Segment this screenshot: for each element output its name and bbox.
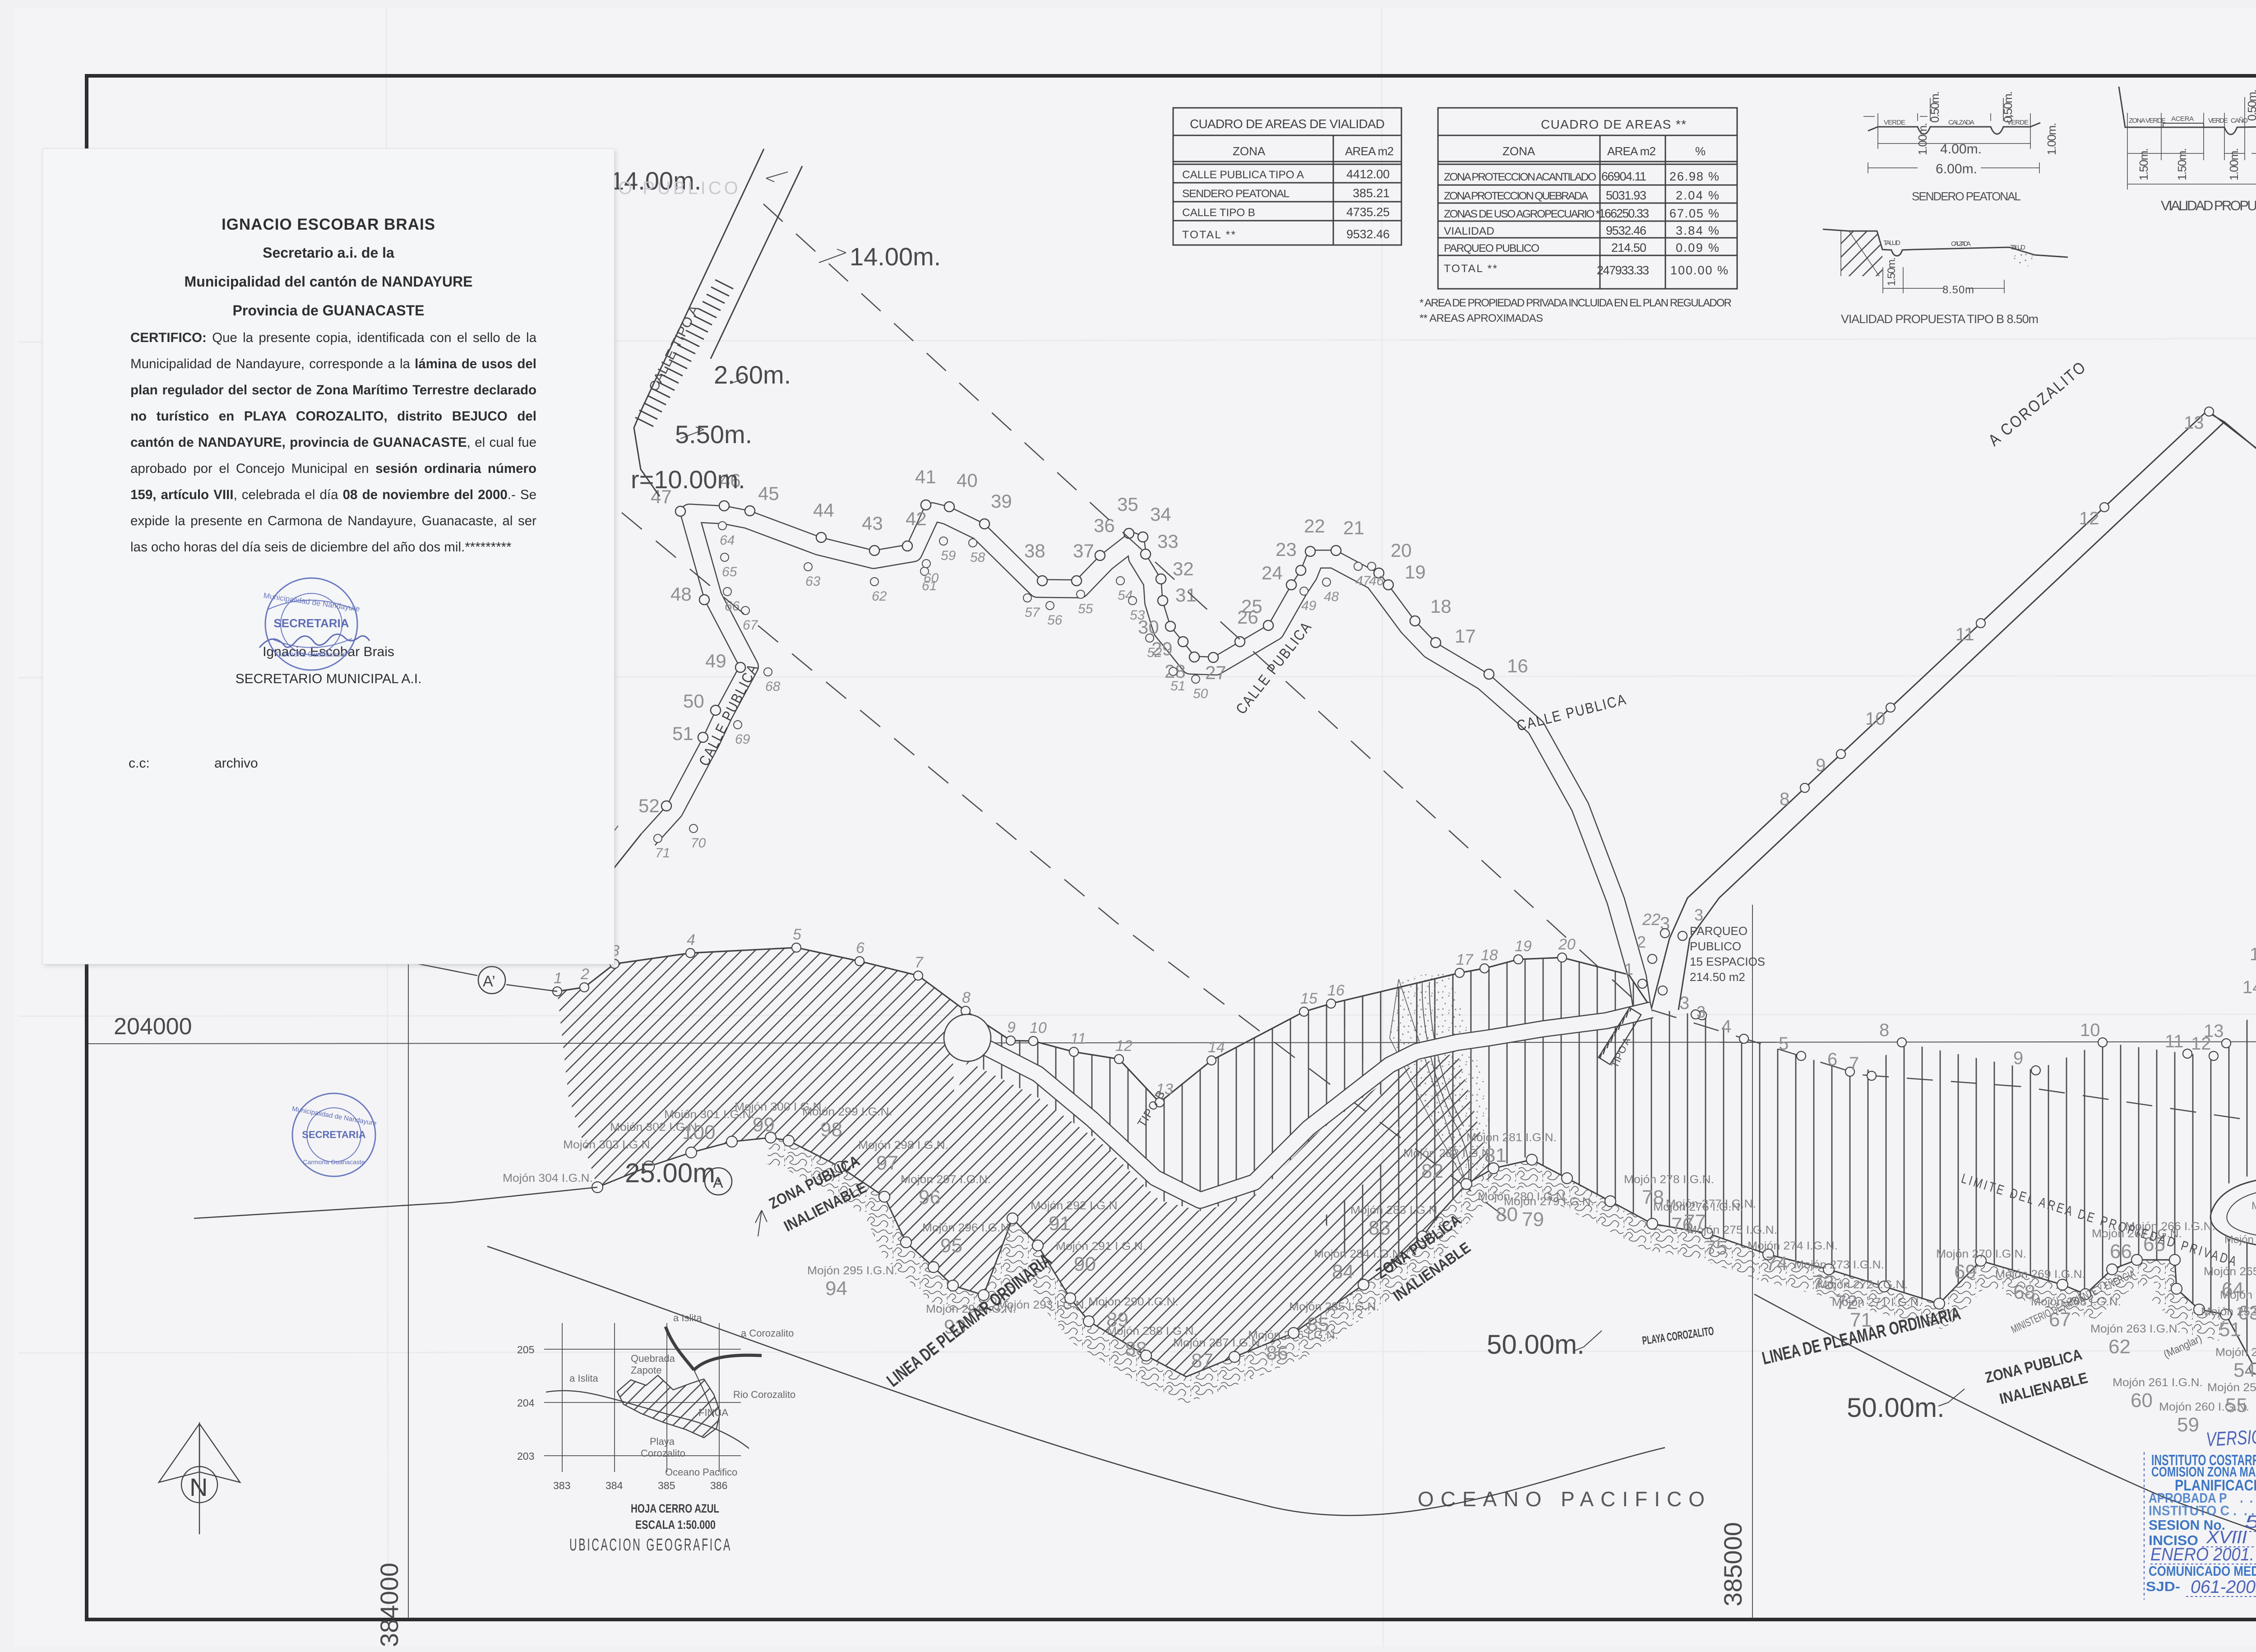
svg-text:VIALIDAD: VIALIDAD [1444, 225, 1494, 237]
svg-text:PARQUEO PUBLICO: PARQUEO PUBLICO [1444, 242, 1539, 255]
svg-text:67: 67 [743, 618, 758, 633]
svg-text:** AREAS APROXIMADAS: ** AREAS APROXIMADAS [1419, 312, 1543, 324]
svg-text:VIALIDAD PROPUESTA TIPO A: VIALIDAD PROPUESTA TIPO A 14.00m. [2161, 198, 2256, 213]
svg-text:13: 13 [2204, 1021, 2224, 1041]
svg-text:6.00m.: 6.00m. [1936, 162, 1977, 176]
svg-text:Playa: Playa [650, 1436, 675, 1447]
svg-text:50: 50 [1193, 686, 1208, 701]
svg-text:64: 64 [720, 533, 735, 548]
svg-text:14: 14 [1208, 1039, 1225, 1056]
svg-text:22: 22 [1642, 910, 1660, 929]
svg-text:Carmona Guanacaste: Carmona Guanacaste [276, 651, 347, 658]
svg-text:52: 52 [638, 795, 660, 816]
svg-text:40: 40 [957, 470, 978, 491]
svg-text:ZONA VERDE: ZONA VERDE [2129, 117, 2166, 125]
svg-text:CALLE TIPO B: CALLE TIPO B [1182, 207, 1255, 219]
svg-text:CALZADA: CALZADA [1951, 240, 1971, 248]
svg-text:20: 20 [1391, 540, 1412, 561]
svg-text:6: 6 [856, 939, 864, 957]
svg-text:4: 4 [1721, 1017, 1731, 1037]
svg-text:62: 62 [2108, 1336, 2131, 1358]
svg-text:Mojón 255 I.G.N.: Mojón 255 I.G.N. [2215, 1346, 2256, 1359]
svg-text:0.09 %: 0.09 % [1676, 241, 1719, 255]
svg-text:41: 41 [915, 466, 936, 487]
svg-text:2: 2 [1637, 933, 1646, 951]
svg-text:49: 49 [705, 650, 726, 671]
svg-text:49: 49 [1301, 598, 1317, 613]
svg-text:90: 90 [1074, 1253, 1096, 1275]
svg-text:95: 95 [940, 1235, 962, 1257]
svg-text:Mojón 275 I.G.N.: Mojón 275 I.G.N. [1687, 1224, 1777, 1236]
svg-text:214.50 m2: 214.50 m2 [1690, 970, 1745, 984]
svg-text:Mojón 290 I.G.N.: Mojón 290 I.G.N. [1088, 1296, 1179, 1308]
svg-text:18: 18 [1430, 596, 1452, 617]
svg-text:204000: 204000 [114, 1013, 192, 1040]
svg-text:67.05 %: 67.05 % [1669, 207, 1719, 220]
svg-text:48: 48 [1324, 589, 1339, 604]
svg-text:19: 19 [1405, 561, 1426, 583]
svg-text:VIALIDAD PROPUESTA TIPO B: VIALIDAD PROPUESTA TIPO B 8.50m [1841, 312, 2039, 326]
svg-text:12: 12 [1115, 1037, 1133, 1055]
svg-text:52: 52 [1147, 645, 1162, 660]
svg-text:16: 16 [1327, 982, 1345, 999]
svg-text:CUADRO DE AREAS DE VIALIDA: CUADRO DE AREAS DE VIALIDAD [1190, 117, 1385, 131]
svg-text:66904.11: 66904.11 [1601, 170, 1646, 183]
svg-text:0.50m.: 0.50m. [1928, 91, 1942, 123]
svg-text:SJD-: SJD- [2146, 1579, 2180, 1594]
svg-text:Carmona Guanacaste: Carmona Guanacaste [303, 1158, 365, 1166]
svg-text:1: 1 [554, 970, 562, 987]
svg-text:26.98 %: 26.98 % [1669, 170, 1719, 183]
svg-text:ZONA: ZONA [1502, 144, 1535, 158]
svg-text:2.04 %: 2.04 % [1676, 189, 1719, 202]
svg-text:55: 55 [2225, 1394, 2247, 1416]
svg-text:98: 98 [820, 1119, 842, 1141]
svg-text:SECRETARIA: SECRETARIA [273, 616, 349, 630]
svg-text:* AREA DE PROPIEDAD PRIVAD: * AREA DE PROPIEDAD PRIVADA INCLUIDA EN … [1419, 297, 1732, 309]
svg-text:385.21: 385.21 [1353, 186, 1390, 200]
svg-text:Mojón 281 I.G.N.: Mojón 281 I.G.N. [1466, 1131, 1557, 1144]
svg-text:8: 8 [1780, 789, 1789, 809]
svg-text:Mojón 304 I.G.N.: Mojón 304 I.G.N. [503, 1172, 593, 1185]
svg-text:Mojón 292 I.G.N.: Mojón 292 I.G.N. [1031, 1199, 1121, 1212]
svg-text:TALUD: TALUD [2010, 244, 2025, 251]
svg-text:63: 63 [805, 574, 821, 589]
svg-text:0.50m.: 0.50m. [2245, 89, 2256, 121]
svg-text:N: N [190, 1473, 208, 1501]
svg-text:17: 17 [1455, 625, 1476, 647]
svg-text:19: 19 [1515, 938, 1532, 955]
svg-text:203: 203 [517, 1450, 534, 1462]
svg-text:CUADRO DE AREAS **: CUADRO DE AREAS ** [1541, 117, 1686, 131]
svg-text:8.50m: 8.50m [1942, 284, 1974, 296]
svg-text:54: 54 [2233, 1359, 2256, 1381]
svg-text:Mojón 250 I.G.N.: Mojón 250 I.G.N. [2251, 1200, 2256, 1212]
svg-text:17: 17 [1456, 951, 1474, 968]
svg-text:FINCA: FINCA [698, 1407, 728, 1418]
svg-text:Mojón 295 I.G.N.: Mojón 295 I.G.N. [807, 1264, 897, 1277]
svg-text:ZONA PROTECCION ACANTILADO: ZONA PROTECCION ACANTILADO [1444, 171, 1596, 183]
svg-text:Mojón 298 I.G.N.: Mojón 298 I.G.N. [858, 1139, 948, 1152]
svg-text:1.00m.: 1.00m. [1916, 123, 1929, 155]
svg-text:85: 85 [1307, 1314, 1329, 1336]
svg-text:69: 69 [735, 732, 750, 747]
svg-text:66: 66 [2110, 1240, 2132, 1263]
svg-text:%: % [1695, 144, 1706, 158]
svg-text:14: 14 [2242, 977, 2256, 997]
svg-text:45: 45 [758, 483, 779, 504]
svg-text:31: 31 [1175, 584, 1197, 606]
svg-text:33: 33 [1157, 531, 1179, 552]
svg-text:Mojón 299 I.G.N.: Mojón 299 I.G.N. [802, 1106, 892, 1118]
svg-text:PUBLICO: PUBLICO [1690, 939, 1741, 953]
svg-text:60: 60 [2131, 1389, 2153, 1411]
svg-text:384000: 384000 [375, 1563, 403, 1647]
svg-text:CALZADA: CALZADA [1948, 119, 1974, 126]
svg-text:OCEANO PACIFICO: OCEANO PACIFICO [1418, 1487, 1711, 1511]
svg-text:15: 15 [1300, 990, 1318, 1007]
svg-text:VERDE: VERDE [1884, 119, 1905, 126]
svg-text:2.60m.: 2.60m. [714, 361, 791, 389]
svg-text:65: 65 [722, 565, 737, 579]
svg-text:Mojón 303 I.G.N.: Mojón 303 I.G.N. [563, 1138, 653, 1151]
svg-text:COMUNICADO MEDIANTE OFICIO: COMUNICADO MEDIANTE OFICIO [2149, 1563, 2256, 1579]
svg-text:Mojón 263 I.G.N.: Mojón 263 I.G.N. [2090, 1323, 2181, 1335]
svg-text:Mojón 271 I.G.N.: Mojón 271 I.G.N. [1832, 1296, 1922, 1309]
svg-text:16: 16 [1507, 655, 1528, 676]
svg-text:55: 55 [1078, 602, 1093, 616]
svg-text:SENDERO PEATONAL: SENDERO PEATONAL [1912, 190, 2021, 203]
svg-text:214.50: 214.50 [1611, 241, 1646, 255]
svg-text:AREA m2: AREA m2 [1607, 144, 1656, 158]
svg-text:TOTAL **: TOTAL ** [1182, 229, 1235, 241]
svg-text:15: 15 [2250, 944, 2256, 964]
svg-text:061-2001 DEL 31-01-01: 061-2001 DEL 31-01-01 [2191, 1577, 2256, 1597]
svg-text:22: 22 [1304, 515, 1325, 537]
svg-text:Mojón 251 I.G.N.: Mojón 251 I.G.N. [2224, 1234, 2256, 1246]
svg-text:1.50m.: 1.50m. [1886, 257, 1898, 286]
svg-text:Corozalito: Corozalito [641, 1448, 685, 1459]
svg-text:58: 58 [970, 550, 985, 565]
svg-text:Zapote: Zapote [631, 1365, 662, 1376]
svg-text:8: 8 [962, 989, 971, 1006]
svg-text:59: 59 [941, 548, 956, 563]
svg-text:383: 383 [553, 1480, 570, 1491]
svg-text:Mojón 273 I.G.N.: Mojón 273 I.G.N. [1794, 1259, 1884, 1271]
svg-text:5.50m.: 5.50m. [675, 420, 752, 449]
svg-text:6: 6 [1827, 1050, 1837, 1069]
svg-text:r=10.00m.: r=10.00m. [631, 465, 745, 494]
svg-text:56: 56 [1047, 613, 1063, 628]
svg-text:11: 11 [1070, 1030, 1086, 1047]
svg-text:25: 25 [1241, 596, 1262, 617]
svg-text:51: 51 [1170, 679, 1185, 694]
svg-text:Mojón 274 I.G.N.: Mojón 274 I.G.N. [1747, 1240, 1838, 1252]
svg-text:Mojón 288 I.G.N.: Mojón 288 I.G.N. [1107, 1325, 1197, 1337]
svg-text:385000: 385000 [1719, 1522, 1747, 1606]
svg-text:11: 11 [2165, 1032, 2184, 1051]
svg-text:Mojón 261 I.G.N.: Mojón 261 I.G.N. [2113, 1376, 2203, 1389]
svg-text:A’: A’ [483, 973, 495, 990]
svg-text:ACERA: ACERA [2171, 115, 2194, 123]
svg-text:39: 39 [991, 491, 1012, 512]
svg-text:86: 86 [1266, 1342, 1288, 1364]
svg-text:60: 60 [924, 571, 939, 586]
svg-text:ENERO 2001.: ENERO 2001. [2150, 1545, 2254, 1564]
svg-text:87: 87 [1191, 1350, 1213, 1372]
svg-text:UBICACION GEOGRAFICA: UBICACION GEOGRAFICA [569, 1536, 732, 1555]
svg-text:1.00m.: 1.00m. [2045, 123, 2058, 155]
svg-text:68: 68 [765, 679, 781, 694]
svg-text:9532.46: 9532.46 [1346, 227, 1390, 241]
svg-text:36: 36 [1094, 515, 1115, 536]
svg-text:a Corozalito: a Corozalito [741, 1328, 794, 1339]
svg-text:97: 97 [876, 1152, 898, 1174]
svg-text:ZONA PROTECCION QUEBRADA: ZONA PROTECCION QUEBRADA [1444, 190, 1589, 202]
svg-text:Mojón 279 I.G.N.: Mojón 279 I.G.N. [1504, 1195, 1594, 1208]
svg-text:3.84 %: 3.84 % [1676, 224, 1719, 237]
svg-text:4412.00: 4412.00 [1346, 167, 1390, 181]
svg-text:5: 5 [1779, 1034, 1789, 1054]
svg-text:a Islita: a Islita [673, 1312, 702, 1323]
svg-text:Mojón 264 I.G.N.: Mojón 264 I.G.N. [2220, 1289, 2256, 1301]
svg-text:Mojón 285 I.G.N.: Mojón 285 I.G.N. [1289, 1300, 1379, 1313]
svg-text:83: 83 [1368, 1217, 1391, 1239]
svg-text:7: 7 [1849, 1054, 1859, 1074]
svg-text:Mojón 296 I.G.N.: Mojón 296 I.G.N. [922, 1222, 1012, 1234]
svg-text:205: 205 [517, 1344, 534, 1356]
svg-text:59: 59 [2177, 1414, 2199, 1436]
svg-text:1.50m.: 1.50m. [2175, 148, 2189, 180]
svg-text:1.00m.: 1.00m. [2227, 148, 2241, 180]
svg-text:3: 3 [1694, 906, 1703, 924]
svg-text:10: 10 [2080, 1020, 2100, 1040]
svg-text:46: 46 [1369, 574, 1384, 588]
svg-text:75: 75 [1705, 1237, 1727, 1259]
svg-text:Mojón 272 I.G.N.: Mojón 272 I.G.N. [1817, 1278, 1908, 1291]
svg-text:71: 71 [655, 846, 670, 861]
svg-text:99: 99 [753, 1114, 775, 1136]
svg-text:Mojón 276 I.G.N.: Mojón 276 I.G.N. [1653, 1201, 1743, 1213]
svg-text:a Islita: a Islita [569, 1373, 598, 1384]
svg-text:247933.33: 247933.33 [1597, 264, 1649, 277]
svg-text:81: 81 [1484, 1144, 1507, 1166]
svg-text:A: A [713, 1174, 723, 1191]
svg-text:50.00m.: 50.00m. [1847, 1393, 1945, 1423]
svg-text:Mojón 282 I.G.N.: Mojón 282 I.G.N. [1403, 1147, 1493, 1160]
svg-text:Mojón 269 I.G.N.: Mojón 269 I.G.N. [1995, 1268, 2085, 1281]
svg-text:32: 32 [1173, 558, 1194, 579]
svg-text:13: 13 [2184, 413, 2204, 433]
svg-text:100.00 %: 100.00 % [1670, 264, 1728, 277]
svg-text:Mojón 291 I.G.N.: Mojón 291 I.G.N. [1056, 1240, 1146, 1253]
svg-text:384: 384 [606, 1480, 623, 1491]
svg-text:8: 8 [1879, 1020, 1889, 1040]
svg-text:0.50m.: 0.50m. [2001, 91, 2015, 123]
svg-text:10: 10 [1865, 709, 1886, 729]
svg-text:21: 21 [1343, 517, 1364, 538]
svg-text:Mojón 256 I.G.N.: Mojón 256 I.G.N. [2207, 1381, 2256, 1394]
svg-text:4735.25: 4735.25 [1346, 205, 1390, 219]
svg-text:62: 62 [872, 589, 887, 604]
svg-text:4.00m.: 4.00m. [1940, 142, 1982, 157]
svg-text:35: 35 [1117, 494, 1138, 515]
svg-text:SECRETARIA: SECRETARIA [302, 1129, 365, 1140]
svg-text:94: 94 [825, 1277, 847, 1300]
svg-text:HOJA CERRO AZUL: HOJA CERRO AZUL [631, 1502, 719, 1515]
svg-text:4: 4 [687, 931, 695, 949]
svg-text:ZONAS DE USO AGROPECUARIO: ZONAS DE USO AGROPECUARIO * [1444, 208, 1600, 220]
svg-text:44: 44 [813, 500, 834, 521]
svg-text:50.00m.: 50.00m. [1487, 1329, 1585, 1360]
svg-text:84: 84 [1332, 1261, 1354, 1283]
svg-text:SENDERO PEATONAL: SENDERO PEATONAL [1182, 188, 1290, 200]
svg-text:AREA m2: AREA m2 [1345, 144, 1394, 158]
svg-text:74: 74 [1766, 1253, 1788, 1275]
svg-text:12: 12 [2079, 509, 2099, 528]
svg-text:Mojón 270 I.G.N.: Mojón 270 I.G.N. [1936, 1248, 2026, 1260]
svg-text:91: 91 [1049, 1212, 1071, 1235]
svg-text:51: 51 [2219, 1319, 2241, 1341]
svg-text:5: 5 [793, 926, 801, 943]
svg-text:7: 7 [915, 954, 924, 971]
svg-text:48: 48 [670, 583, 692, 605]
svg-text:34: 34 [1150, 504, 1171, 525]
svg-text:10: 10 [1030, 1019, 1047, 1037]
svg-text:204: 204 [517, 1397, 535, 1409]
svg-text:TALUD: TALUD [1883, 239, 1900, 247]
svg-text:96: 96 [919, 1186, 941, 1208]
svg-text:53: 53 [1130, 608, 1145, 623]
svg-text:14.00m.: 14.00m. [850, 242, 941, 271]
svg-text:100: 100 [682, 1121, 715, 1143]
svg-text:43: 43 [862, 513, 883, 534]
svg-text:38: 38 [1024, 540, 1045, 561]
svg-text:9532.46: 9532.46 [1606, 224, 1646, 237]
svg-text:Rio Corozalito: Rio Corozalito [733, 1389, 795, 1400]
svg-text:69: 69 [1954, 1261, 1976, 1283]
svg-text:Quebrada: Quebrada [631, 1353, 675, 1364]
svg-text:385: 385 [658, 1480, 675, 1491]
svg-text:18: 18 [1481, 947, 1498, 964]
svg-text:ZONA: ZONA [1233, 144, 1266, 158]
svg-text:20: 20 [1558, 936, 1576, 953]
svg-text:24: 24 [1262, 562, 1283, 583]
svg-text:23: 23 [1276, 539, 1297, 560]
svg-text:11: 11 [1956, 625, 1974, 644]
svg-text:TOTAL **: TOTAL ** [1444, 263, 1497, 275]
svg-text:5031.93: 5031.93 [1606, 189, 1646, 202]
svg-text:Mojón 252 I.G.N.: Mojón 252 I.G.N. [2201, 1305, 2256, 1318]
svg-text:82: 82 [1421, 1160, 1443, 1182]
svg-text:37: 37 [1073, 540, 1094, 561]
svg-text:66: 66 [725, 599, 740, 614]
svg-text:79: 79 [1522, 1208, 1544, 1231]
svg-text:CALLE PUBLICA TIPO A: CALLE PUBLICA TIPO A [1182, 169, 1304, 181]
svg-text:9: 9 [1816, 755, 1826, 775]
svg-text:VERDE: VERDE [2208, 117, 2228, 125]
svg-text:70: 70 [691, 836, 706, 851]
svg-text:Oceano Pacifico: Oceano Pacifico [665, 1467, 737, 1478]
svg-text:INSTITUTO C . . . . . RISM: INSTITUTO C . . . . . RISMO EN [2149, 1503, 2256, 1518]
svg-text:3: 3 [1697, 1003, 1706, 1021]
svg-text:51: 51 [672, 723, 693, 744]
svg-text:50: 50 [683, 690, 704, 712]
svg-text:57: 57 [1025, 605, 1040, 620]
svg-text:2: 2 [580, 966, 589, 983]
svg-text:ESCALA 1:50.000: ESCALA 1:50.000 [635, 1518, 716, 1532]
svg-text:1.50m.: 1.50m. [2137, 148, 2150, 180]
svg-text:9: 9 [1007, 1019, 1016, 1036]
svg-text:1: 1 [1624, 960, 1633, 978]
svg-text:Mojón 283 I.G.N.: Mojón 283 I.G.N. [1350, 1204, 1441, 1217]
svg-text:166250.33: 166250.33 [1599, 207, 1649, 220]
svg-text:27: 27 [1205, 662, 1226, 683]
svg-text:9: 9 [2013, 1048, 2023, 1068]
svg-text:386: 386 [710, 1480, 727, 1491]
svg-text:Mojón 297 I.G.N.: Mojón 297 I.G.N. [901, 1173, 991, 1186]
svg-text:Mojón 278 I.G.N.: Mojón 278 I.G.N. [1624, 1173, 1714, 1186]
svg-text:15 ESPACIOS: 15 ESPACIOS [1690, 955, 1765, 968]
svg-text:42: 42 [906, 508, 927, 529]
